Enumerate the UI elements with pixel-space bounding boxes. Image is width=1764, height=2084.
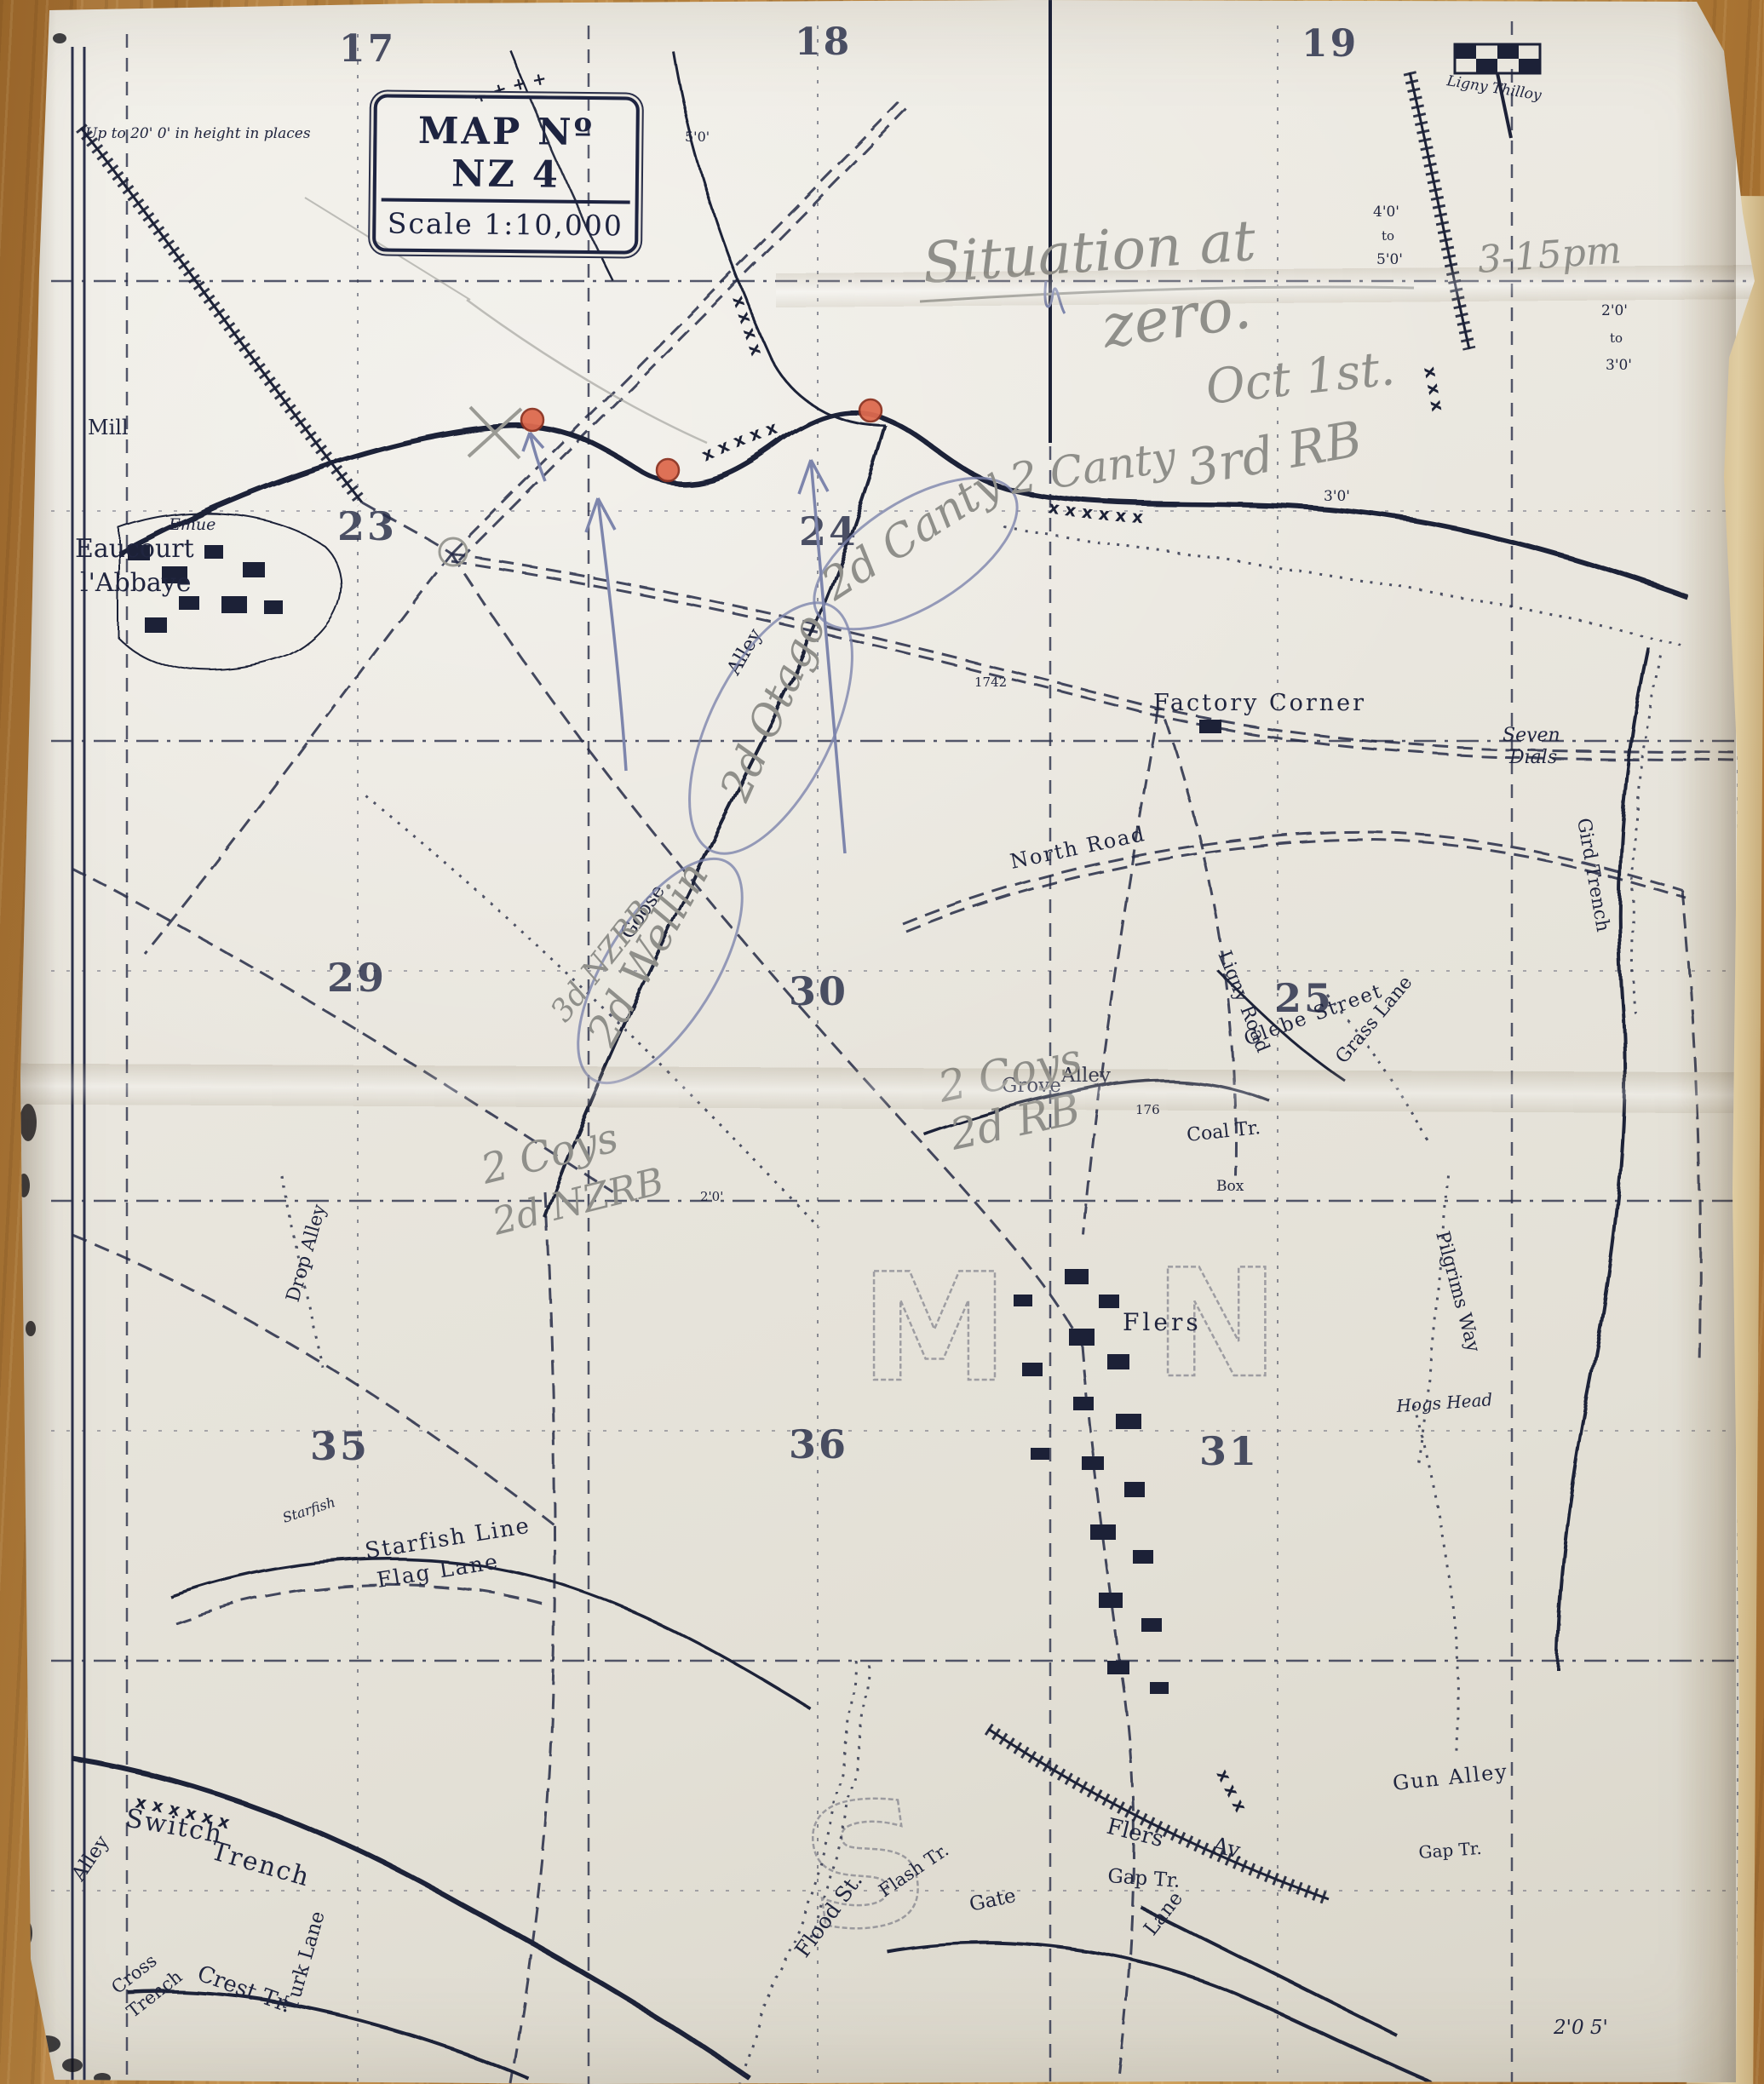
label-19: 19 <box>1301 22 1359 66</box>
label-30: 30 <box>789 968 848 1014</box>
label-m: M <box>860 1243 1008 1415</box>
label-emue: Emue <box>168 515 215 534</box>
label-flers-av-1: Flers <box>1104 1814 1166 1852</box>
label-3-0: 3'0' <box>1324 488 1350 505</box>
hatched-roads <box>81 72 1469 1899</box>
label-gate: Gate <box>968 1885 1018 1916</box>
label-up-to-20-0-in-height-in-places: Up to 20' 0' in height in places <box>85 125 311 142</box>
cross-marks-4: x x x <box>1213 1766 1251 1816</box>
note-zero: zero. <box>1097 272 1255 362</box>
cross-marks-0: x x x x x <box>698 417 780 466</box>
photo-of-trench-map: x x x x xx x x x x xx x xx x x x x xx x … <box>0 0 1764 2084</box>
position-marker-dot-1 <box>521 409 543 431</box>
label-gun-alley: Gun Alley <box>1392 1760 1509 1795</box>
label-2-0-5: 2'0 5' <box>1553 2017 1608 2039</box>
label-flers-av-2: Av. <box>1209 1832 1247 1864</box>
position-marker-dot-3 <box>859 399 882 422</box>
cross-marks-6: x x x x <box>728 293 767 358</box>
label-176: 176 <box>1135 1102 1160 1117</box>
label-turk-lane: Turk Lane <box>280 1909 330 2012</box>
label-factory-corner: Factory Corner <box>1153 690 1366 716</box>
label-coal-tr: Coal Tr. <box>1186 1117 1261 1146</box>
label-18: 18 <box>795 20 852 64</box>
label-29: 29 <box>327 955 387 1001</box>
label-dials: Dials <box>1508 747 1557 768</box>
label-mill: Mill <box>88 416 129 439</box>
cross-marks-2: x x x <box>1420 365 1448 412</box>
label-ligny-thilloy: Ligny Thilloy <box>1445 72 1543 104</box>
label-to: to <box>1382 228 1394 244</box>
printed-labels: Up to 20' 0' in height in placesMillEmue… <box>67 72 1632 2039</box>
label-alley-sw: Alley <box>67 1832 114 1886</box>
note-oct-1st: Oct 1st. <box>1204 341 1398 416</box>
toner-marks <box>7 33 111 2083</box>
map-title-box: MAP Nº NZ 4 Scale 1:10,000 <box>372 94 640 254</box>
label-hogs-head: Hogs Head <box>1395 1389 1493 1416</box>
label-eaucourt: Eaucourt <box>75 534 194 564</box>
note-2-canty: 2 Canty <box>1006 432 1180 504</box>
label-3-0: 3'0' <box>1606 357 1632 374</box>
label-gap-tr-2: Gap Tr. <box>1418 1838 1483 1863</box>
label-north-road: North Road <box>1008 822 1147 874</box>
label-31: 31 <box>1199 1428 1259 1474</box>
map-scale: Scale 1:10,000 <box>381 206 629 242</box>
label-crest-tr: Crest Tr. <box>194 1961 295 2018</box>
label-to: to <box>1610 330 1623 346</box>
label-23: 23 <box>337 503 397 549</box>
label-5-0: 5'0' <box>685 129 710 145</box>
label-4-0: 4'0' <box>1373 204 1399 221</box>
label-gate-lane-2: Lane <box>1140 1887 1187 1939</box>
label-5-0: 5'0' <box>1376 251 1403 268</box>
label-pilgrims-way: Pilgrims Way <box>1431 1229 1484 1355</box>
label-flers: Flers <box>1123 1308 1202 1336</box>
label-l-abbaye: l'Abbaye <box>80 568 192 598</box>
position-marker-dot-2 <box>657 459 679 481</box>
grid-letters: MNS <box>791 1238 1278 1974</box>
label-2-0: 2'0' <box>1601 302 1628 319</box>
label-36: 36 <box>789 1421 848 1467</box>
label-elev-mid: 2'0' <box>700 1189 723 1204</box>
note-3rd-rb: 3rd RB <box>1183 410 1366 497</box>
map-sheet: x x x x xx x x x x xx x xx x x x x xx x … <box>0 0 1764 2084</box>
map-title: MAP Nº NZ 4 <box>382 109 631 204</box>
label-35: 35 <box>310 1423 370 1469</box>
label-starfish: Starfish <box>280 1494 337 1526</box>
map-svg: x x x x xx x x x x xx x xx x x x x xx x … <box>0 0 1764 2084</box>
label-17: 17 <box>339 27 396 71</box>
label-box: Box <box>1216 1178 1244 1195</box>
label-switch-trench-2: Trench <box>208 1836 314 1893</box>
label-1742: 1742 <box>974 675 1007 690</box>
note-3-15pm: 3-15pm <box>1476 228 1623 282</box>
label-seven: Seven <box>1503 725 1560 746</box>
